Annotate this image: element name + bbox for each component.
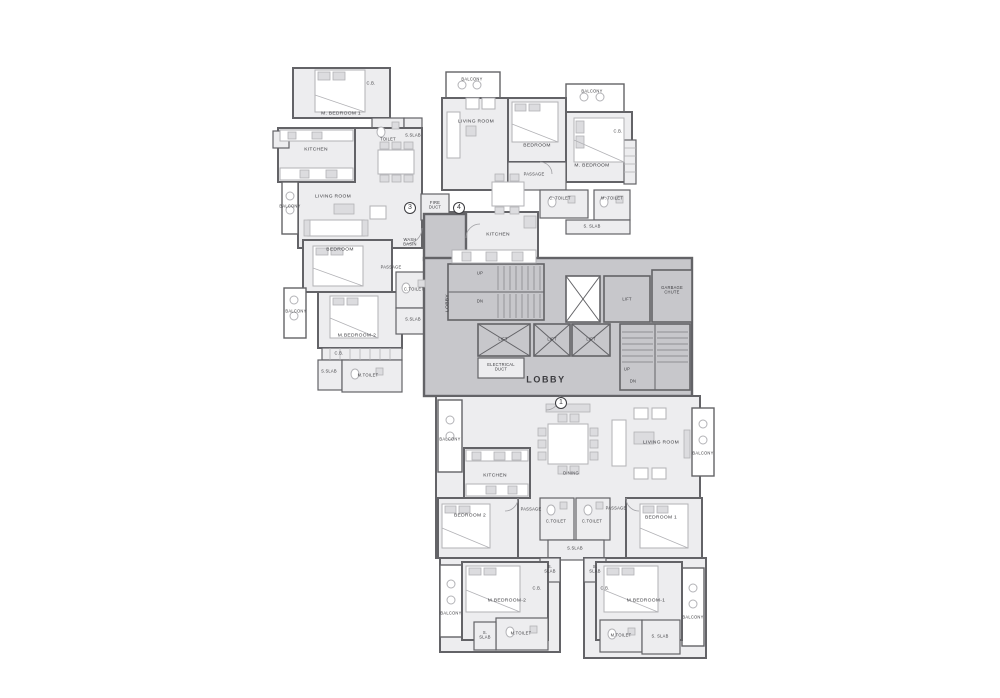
label-tr-c-toilet: C. TOILET — [549, 197, 570, 202]
bed-b-bedroom1 — [640, 504, 688, 548]
label-tr-bedroom: BEDROOM — [523, 143, 550, 149]
label-b-m-toilet-1: M.TOILET — [511, 632, 532, 637]
label-tl-cb-2: C.B. — [335, 352, 344, 357]
label-b-living-room: LIVING ROOM — [643, 440, 679, 446]
label-garbage-chute: GARBAGE CHUTE — [661, 286, 683, 296]
label-core-up-1: UP — [477, 272, 483, 277]
label-core-lift-2: LIFT — [547, 338, 556, 343]
label-b-cb-2: C.B. — [601, 587, 610, 592]
label-tl-c-toilet: C.TOILET — [404, 288, 424, 293]
label-tr-m-bedroom: M. BEDROOM — [574, 163, 609, 169]
bed-b-m1 — [604, 566, 658, 612]
label-tl-m-toilet: M.TOILET — [358, 374, 379, 379]
label-b-s-slab-2: S. SLAB — [651, 635, 668, 640]
label-tr-living-room: LIVING ROOM — [458, 119, 494, 125]
label-tl-balcony-2: BALCONY — [285, 310, 306, 315]
label-core-dn-2: DN — [630, 380, 636, 385]
label-b-s-slab-l: S. SLAB — [544, 565, 555, 575]
label-core-lift-4: LIFT — [622, 298, 631, 303]
room-tr-c-toilet — [540, 190, 588, 218]
label-b-passage-1: PASSAGE — [521, 508, 542, 513]
label-tr-passage: PASSAGE — [524, 173, 545, 178]
label-b-s-slab-1: S. SLAB — [479, 631, 490, 641]
label-tl-wash-basin: WASH BASIN — [403, 238, 416, 248]
label-tl-bedroom: BEDROOM — [326, 247, 353, 253]
bed-b-m2 — [466, 566, 520, 612]
label-core-up-2: UP — [624, 368, 630, 373]
label-b-m-toilet-2: M.TOILET — [611, 634, 632, 639]
floor-plan-canvas — [0, 0, 1000, 698]
marker-4: 4 — [453, 202, 465, 214]
label-b-c-toilet-2: C.TOILET — [582, 520, 602, 525]
floor-plan: M. BEDROOM 1 C.B. TOILET S.SLAB KITCHEN … — [0, 0, 1000, 698]
service-duct — [566, 276, 600, 322]
label-tl-living-room: LIVING ROOM — [315, 194, 351, 200]
label-tr-kitchen: KITCHEN — [486, 232, 510, 238]
room-tr-balcony-2 — [566, 84, 624, 112]
label-lobby: LOBBY — [526, 375, 566, 386]
label-b-kitchen: KITCHEN — [483, 473, 507, 479]
bed-tr-m — [574, 118, 624, 162]
label-tl-balcony-1: BALCONY — [279, 205, 300, 210]
bed-tl-m2 — [330, 296, 378, 338]
label-core-dn-1: DN — [477, 300, 483, 305]
bed-b-bedroom2 — [442, 504, 490, 548]
label-tl-s-slab-3: S.SLAB — [405, 318, 421, 323]
label-b-balcony-2: BALCONY — [692, 452, 713, 457]
label-core-lift-1: LIFT — [498, 338, 507, 343]
label-tl-s-slab-2: S.SLAB — [321, 370, 337, 375]
label-b-c-toilet-1: C.TOILET — [546, 520, 566, 525]
bed-tr-bedroom — [512, 102, 558, 142]
label-electrical-duct: ELECTRICAL DUCT — [487, 363, 515, 373]
label-b-bedroom-1: BEDROOM 1 — [645, 515, 677, 521]
label-tr-m-toilet: M. TOILET — [601, 197, 623, 202]
label-tr-s-slab: S. SLAB — [583, 225, 600, 230]
label-core-lobby-vertical: LOBBY — [445, 294, 451, 312]
staircase-1 — [448, 264, 544, 320]
core — [424, 214, 692, 396]
label-b-bedroom-2: BEDROOM 2 — [454, 513, 486, 519]
label-tl-kitchen: KITCHEN — [304, 147, 328, 153]
label-core-lift-3: LIFT — [586, 338, 595, 343]
label-tl-m-bedroom-1: M. BEDROOM 1 — [321, 111, 361, 117]
room-tl-s-slab-2 — [318, 360, 342, 390]
label-b-s-slab-c: S.SLAB — [567, 547, 583, 552]
marker-1: 1 — [555, 397, 567, 409]
label-tl-toilet: TOILET — [380, 138, 396, 143]
label-tl-m-bedroom-2: M.BEDROOM-2 — [338, 333, 376, 339]
room-tr-m-toilet — [594, 190, 630, 220]
marker-3: 3 — [404, 202, 416, 214]
label-b-balcony-4: BALCONY — [682, 616, 703, 621]
label-tl-cb: C.B. — [367, 82, 376, 87]
label-fire-duct: FIRE DUCT — [429, 201, 441, 211]
dining-tl — [378, 142, 414, 182]
label-tr-cb: C.B. — [614, 130, 623, 135]
bed-tl-m1 — [315, 70, 365, 112]
garbage-chute-room — [652, 270, 692, 322]
label-tr-balcony-1: BALCONY — [461, 78, 482, 83]
label-b-passage-2: PASSAGE — [606, 507, 627, 512]
label-b-m-bedroom-1: M.BEDROOM-1 — [627, 598, 665, 604]
label-b-cb-1: C.B. — [533, 587, 542, 592]
label-b-m-bedroom-2: M.BEDROOM-2 — [488, 598, 526, 604]
label-tl-passage: PASSAGE — [381, 266, 402, 271]
label-b-dining: DINING — [563, 472, 579, 477]
label-tr-balcony-2: BALCONY — [581, 90, 602, 95]
label-tl-s-slab-1: S.SLAB — [405, 134, 421, 139]
label-b-balcony-1: BALCONY — [439, 438, 460, 443]
label-b-balcony-3: BALCONY — [440, 612, 461, 617]
label-b-s-slab-r: S. SLAB — [589, 565, 600, 575]
room-tr-cb — [624, 140, 636, 184]
